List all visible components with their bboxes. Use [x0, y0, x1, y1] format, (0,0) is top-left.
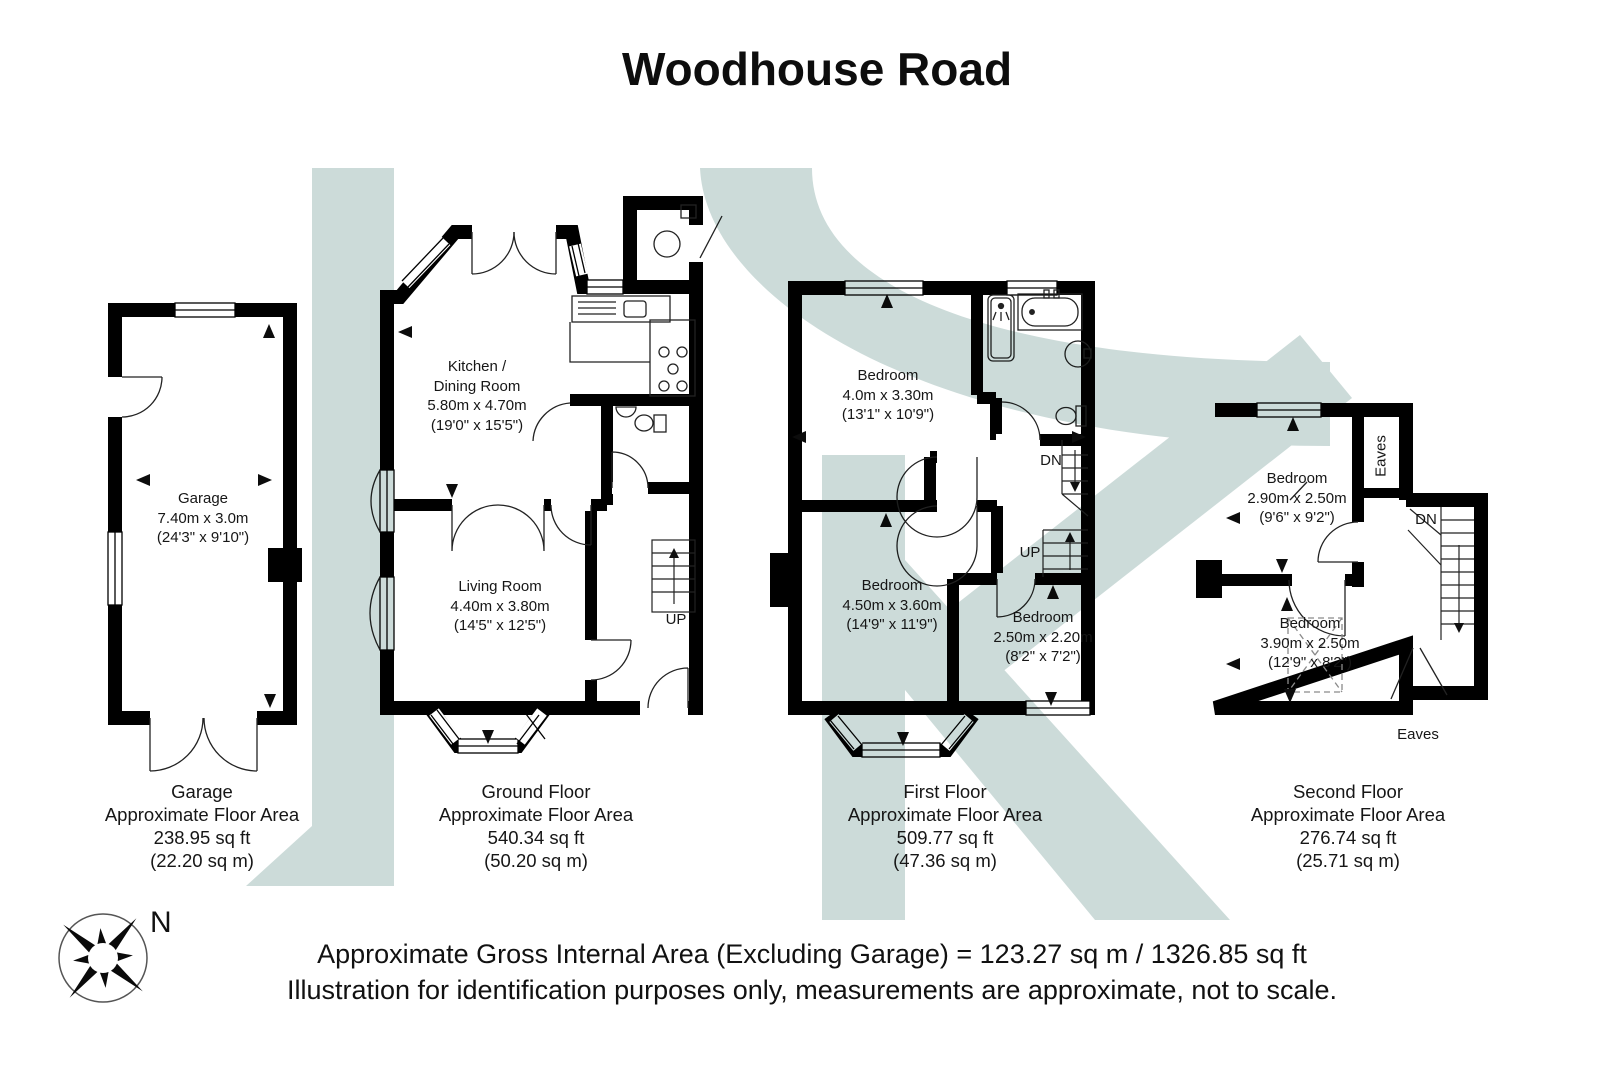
- floorplan-page: Woodhouse Road Garage 7.40m x 3.0m (24'3…: [0, 0, 1620, 1080]
- room-name: Bedroom: [993, 608, 1092, 628]
- caption-line: Approximate Floor Area: [105, 803, 299, 826]
- room-label-bedroom-5: Bedroom 3.90m x 2.50m (12'9" x 8'2"): [1260, 614, 1359, 673]
- stairs-up-label: UP: [666, 611, 687, 628]
- room-dims-imperial: (14'5" x 12'5"): [450, 616, 549, 636]
- room-name: Dining Room: [427, 377, 526, 397]
- second-floor-chimney: [1196, 560, 1222, 598]
- stairs-dn-label: DN: [1040, 452, 1062, 469]
- room-label-kitchen-dining: Kitchen / Dining Room 5.80m x 4.70m (19'…: [427, 357, 526, 435]
- caption-line: Second Floor: [1251, 780, 1445, 803]
- wc-basin: [616, 407, 636, 417]
- hob: [659, 347, 687, 391]
- bathtub: [1018, 290, 1082, 330]
- room-label-bedroom-3: Bedroom 2.50m x 2.20m (8'2" x 7'2"): [993, 608, 1092, 667]
- wall-bedroom1-bottom: [795, 457, 997, 506]
- room-name: Bedroom: [842, 576, 941, 596]
- room-dims-metric: 7.40m x 3.0m: [157, 509, 249, 529]
- room-dims-imperial: (24'3" x 9'10"): [157, 528, 249, 548]
- caption-line: (50.20 sq m): [439, 849, 633, 872]
- room-dims-imperial: (13'1" x 10'9"): [842, 405, 934, 425]
- bow-window-arcs: [370, 470, 380, 650]
- room-dims-imperial: (12'9" x 8'2"): [1260, 653, 1359, 673]
- wc-toilet: [635, 415, 666, 432]
- room-dims-metric: 2.90m x 2.50m: [1247, 489, 1346, 509]
- eaves-label: Eaves: [1397, 726, 1439, 743]
- compass-rose: [59, 914, 147, 1002]
- page-title: Woodhouse Road: [622, 42, 1012, 96]
- room-dims-metric: 5.80m x 4.70m: [427, 396, 526, 416]
- utility-sink: [654, 231, 680, 257]
- kitchen-counter: [570, 322, 650, 362]
- room-name: Kitchen /: [427, 357, 526, 377]
- room-label-bedroom-1: Bedroom 4.0m x 3.30m (13'1" x 10'9"): [842, 366, 934, 425]
- caption-line: Ground Floor: [439, 780, 633, 803]
- gross-internal-area: Approximate Gross Internal Area (Excludi…: [287, 936, 1337, 972]
- caption-line: (22.20 sq m): [105, 849, 299, 872]
- caption-line: (25.71 sq m): [1251, 849, 1445, 872]
- room-dims-imperial: (14'9" x 11'9"): [842, 615, 941, 635]
- kitchen-counter-right: [650, 320, 695, 396]
- room-dims-metric: 4.50m x 3.60m: [842, 596, 941, 616]
- caption-line: (47.36 sq m): [848, 849, 1042, 872]
- garage-recess: [268, 548, 302, 582]
- first-floor-plan: [795, 288, 1088, 750]
- room-label-bedroom-4: Bedroom 2.90m x 2.50m (9'6" x 9'2"): [1247, 469, 1346, 528]
- wall-extension: [1406, 500, 1481, 693]
- room-label-living-room: Living Room 4.40m x 3.80m (14'5" x 12'5"…: [450, 577, 549, 636]
- marker-arrows: [136, 294, 1299, 746]
- caption-line: 509.77 sq ft: [848, 826, 1042, 849]
- room-name: Bedroom: [1247, 469, 1346, 489]
- footer-note: Approximate Gross Internal Area (Excludi…: [287, 936, 1337, 1008]
- caption-first-floor: First Floor Approximate Floor Area 509.7…: [848, 780, 1042, 872]
- room-dims-imperial: (19'0" x 15'5"): [427, 416, 526, 436]
- first-floor-chimney: [770, 553, 802, 607]
- stairs-dn-label: DN: [1415, 511, 1437, 528]
- caption-garage: Garage Approximate Floor Area 238.95 sq …: [105, 780, 299, 872]
- caption-second-floor: Second Floor Approximate Floor Area 276.…: [1251, 780, 1445, 872]
- kitchen-sink-unit: [572, 296, 670, 322]
- caption-line: 276.74 sq ft: [1251, 826, 1445, 849]
- shower: [988, 295, 1014, 361]
- compass-center: [88, 943, 118, 973]
- room-name: Living Room: [450, 577, 549, 597]
- room-name: Bedroom: [1260, 614, 1359, 634]
- room-label-bedroom-2: Bedroom 4.50m x 3.60m (14'9" x 11'9"): [842, 576, 941, 635]
- stairs-up-label: UP: [1020, 544, 1041, 561]
- caption-line: Approximate Floor Area: [439, 803, 633, 826]
- caption-line: 540.34 sq ft: [439, 826, 633, 849]
- caption-line: First Floor: [848, 780, 1042, 803]
- compass-north-label: N: [150, 906, 172, 940]
- room-dims-imperial: (9'6" x 9'2"): [1247, 508, 1346, 528]
- ground-floor-plan: [387, 203, 696, 746]
- ground-floor-stairs: [652, 540, 695, 612]
- room-dims-metric: 4.40m x 3.80m: [450, 597, 549, 617]
- caption-line: Approximate Floor Area: [1251, 803, 1445, 826]
- caption-ground-floor: Ground Floor Approximate Floor Area 540.…: [439, 780, 633, 872]
- room-dims-metric: 3.90m x 2.50m: [1260, 634, 1359, 654]
- room-dims-metric: 2.50m x 2.20m: [993, 628, 1092, 648]
- room-dims-metric: 4.0m x 3.30m: [842, 386, 934, 406]
- caption-line: Approximate Floor Area: [848, 803, 1042, 826]
- room-name: Garage: [157, 489, 249, 509]
- caption-line: Garage: [105, 780, 299, 803]
- disclaimer: Illustration for identification purposes…: [287, 972, 1337, 1008]
- caption-line: 238.95 sq ft: [105, 826, 299, 849]
- eaves-label: Eaves: [1373, 435, 1390, 477]
- room-name: Bedroom: [842, 366, 934, 386]
- room-dims-imperial: (8'2" x 7'2"): [993, 647, 1092, 667]
- room-label-garage: Garage 7.40m x 3.0m (24'3" x 9'10"): [157, 489, 249, 548]
